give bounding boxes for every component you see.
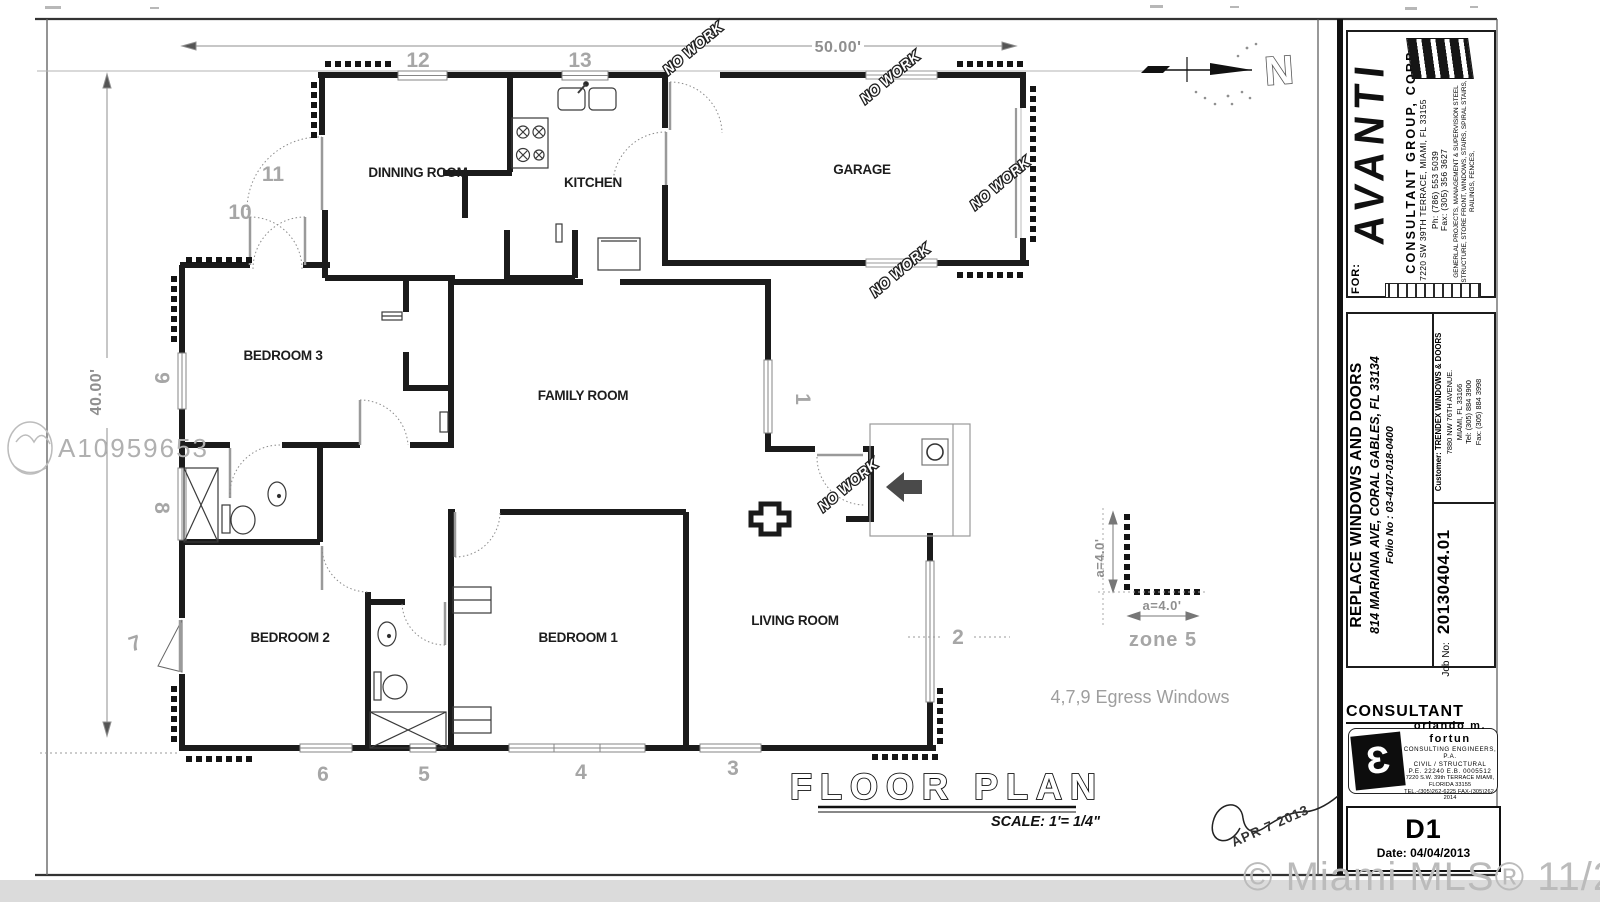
zone-mark bbox=[997, 61, 1003, 67]
zone-mark bbox=[236, 257, 242, 263]
zone-mark bbox=[246, 257, 252, 263]
zone-mark bbox=[355, 61, 361, 67]
entry-porch bbox=[870, 424, 970, 536]
zone-mark bbox=[1030, 106, 1036, 112]
egress-note: 4,7,9 Egress Windows bbox=[1050, 687, 1229, 707]
zone-mark bbox=[987, 61, 993, 67]
zone-mark bbox=[171, 696, 177, 702]
zone-mark bbox=[997, 272, 1003, 278]
zone-mark bbox=[1007, 272, 1013, 278]
no-work-label-garage-right: NO WORK bbox=[967, 153, 1033, 212]
opening-number-4: 4 bbox=[575, 761, 587, 784]
north-label: N bbox=[1263, 48, 1295, 94]
opening-number-10: 10 bbox=[228, 201, 251, 224]
room-label-dinning: DINNING ROOM bbox=[368, 165, 467, 180]
zone-mark bbox=[171, 706, 177, 712]
zone-mark bbox=[375, 61, 381, 67]
customer-tel: Tel: (305) 884 3900 bbox=[1464, 380, 1473, 444]
zone-mark bbox=[171, 326, 177, 332]
zone-mark bbox=[902, 754, 908, 760]
engineer-line5: TEL.-(305)262-6225 FAX-(305)262-2014 bbox=[1403, 789, 1497, 802]
engineer-line1: CONSULTING ENGINEERS, P.A. bbox=[1403, 746, 1497, 761]
windows bbox=[158, 71, 1021, 752]
dim-height: 40.00' bbox=[88, 369, 105, 416]
opening-number-6: 6 bbox=[317, 763, 329, 786]
opening-number-5: 5 bbox=[418, 763, 430, 786]
no-work-label-entry-top: NO WORK bbox=[660, 18, 726, 77]
zone-mark bbox=[325, 61, 331, 67]
zone-mark bbox=[246, 756, 252, 762]
zone-mark bbox=[1007, 61, 1013, 67]
zone-mark bbox=[1017, 272, 1023, 278]
zone-mark bbox=[311, 132, 317, 138]
job-number-label: Job No: bbox=[1441, 642, 1452, 676]
zone-mark bbox=[216, 257, 222, 263]
zone-mark bbox=[216, 756, 222, 762]
room-label-living: LIVING ROOM bbox=[751, 613, 839, 628]
zone-mark bbox=[171, 736, 177, 742]
zone-mark bbox=[1030, 216, 1036, 222]
zone-mark bbox=[922, 754, 928, 760]
zone-mark bbox=[937, 728, 943, 734]
zone-mark bbox=[1030, 96, 1036, 102]
north-arrow: N bbox=[1141, 43, 1295, 106]
zone-mark bbox=[872, 754, 878, 760]
engineer-logo-icon: Ɛ bbox=[1350, 732, 1405, 791]
zone-mark bbox=[196, 257, 202, 263]
crown-molding-art bbox=[1406, 38, 1474, 79]
zone-mark bbox=[932, 754, 938, 760]
zone-mark bbox=[882, 754, 888, 760]
room-label-kitchen: KITCHEN bbox=[564, 175, 622, 190]
zone-mark bbox=[345, 61, 351, 67]
room-label-bedroom2: BEDROOM 2 bbox=[250, 630, 329, 645]
bathroom-hall bbox=[370, 622, 446, 748]
legend-a-vertical: a=4.0' bbox=[1092, 539, 1107, 578]
customer-address1: 7880 NW 76TH AVENUE. bbox=[1445, 370, 1454, 454]
zone-mark bbox=[957, 272, 963, 278]
project-address: 814 MARIANA AVE, CORAL GABLES, FL 33134 bbox=[1368, 319, 1382, 671]
zone-mark bbox=[1124, 544, 1130, 550]
legend-a-horizontal: a=4.0' bbox=[1143, 598, 1182, 613]
zone-mark bbox=[1030, 86, 1036, 92]
firm-fax: Fax: (305) 356 3627 bbox=[1440, 90, 1450, 290]
zone-mark bbox=[171, 686, 177, 692]
sheet-number: D1 bbox=[1348, 814, 1499, 845]
zone-mark bbox=[892, 754, 898, 760]
job-number: 20130404.01 bbox=[1434, 529, 1453, 634]
zone-mark bbox=[196, 756, 202, 762]
zone-mark bbox=[1030, 156, 1036, 162]
zone-mark bbox=[1124, 564, 1130, 570]
zone-mark bbox=[171, 306, 177, 312]
zone-mark bbox=[171, 336, 177, 342]
engineer-name: orlando m. fortun bbox=[1403, 720, 1497, 746]
zone-mark bbox=[311, 122, 317, 128]
entry-arrow-icon bbox=[886, 472, 922, 502]
listing-id-watermark: A10959653 bbox=[58, 433, 209, 463]
mls-copyright-watermark: © Miami MLS® 11/2020 bbox=[1243, 855, 1600, 900]
zone-mark bbox=[171, 716, 177, 722]
no-work-label-garage-bottom: NO WORK bbox=[867, 240, 933, 299]
zone-mark bbox=[311, 92, 317, 98]
opening-number-8: 8 bbox=[150, 502, 173, 514]
zone-mark bbox=[977, 272, 983, 278]
approval-signature: APR 7 2013 bbox=[1212, 796, 1338, 850]
zone-mark bbox=[967, 61, 973, 67]
zone-mark bbox=[335, 61, 341, 67]
scale-label: SCALE: 1'= 1/4" bbox=[991, 814, 1101, 830]
zone-mark bbox=[1030, 226, 1036, 232]
customer-address2: MIAMI, FL 33166 bbox=[1455, 384, 1464, 440]
zone-mark bbox=[171, 276, 177, 282]
kitchen-sink bbox=[558, 88, 585, 110]
project-title: REPLACE WINDOWS AND DOORS bbox=[1348, 319, 1365, 671]
zone-mark bbox=[206, 756, 212, 762]
room-label-bedroom3: BEDROOM 3 bbox=[243, 348, 323, 363]
zone-mark bbox=[365, 61, 371, 67]
room-label-bedroom1: BEDROOM 1 bbox=[538, 630, 618, 645]
zone-mark bbox=[385, 61, 391, 67]
opening-number-11: 11 bbox=[262, 163, 285, 186]
zone-mark bbox=[1030, 116, 1036, 122]
zone-mark bbox=[226, 756, 232, 762]
zone-mark bbox=[171, 726, 177, 732]
customer-name: TRENDEX WINDOWS & DOORS bbox=[1434, 333, 1443, 450]
titleblock-firm-box: FOR: AVANTI CONSULTANT GROUP, CORP. 7220… bbox=[1346, 30, 1496, 298]
zone-mark bbox=[206, 257, 212, 263]
room-label-garage: GARAGE bbox=[833, 162, 891, 177]
zone-mark bbox=[977, 61, 983, 67]
zone5-legend: a=4.0' a=4.0' zone 5 bbox=[1092, 508, 1205, 651]
zone-mark bbox=[171, 286, 177, 292]
zone-mark bbox=[957, 61, 963, 67]
opening-number-13: 13 bbox=[568, 49, 591, 72]
zone-mark bbox=[311, 82, 317, 88]
engineer-line3: P.E. 22240 E.B. 0005512 bbox=[1403, 768, 1497, 775]
drawing-title-text: FLOOR PLAN bbox=[790, 766, 1104, 807]
column-art bbox=[1385, 283, 1481, 298]
zone-mark bbox=[1124, 514, 1130, 520]
firm-address: 7220 SW 39TH TERRACE, MIAMI, FL 33155 bbox=[1419, 90, 1429, 290]
avanti-logo: AVANTI bbox=[1347, 30, 1394, 275]
zone-mark bbox=[171, 296, 177, 302]
room-label-family: FAMILY ROOM bbox=[538, 388, 629, 403]
zone-mark bbox=[311, 102, 317, 108]
zone-mark bbox=[937, 708, 943, 714]
zone-mark bbox=[226, 257, 232, 263]
zone-mark bbox=[937, 688, 943, 694]
zone-mark bbox=[1030, 206, 1036, 212]
zone-mark bbox=[937, 738, 943, 744]
titleblock-project-box: REPLACE WINDOWS AND DOORS 814 MARIANA AV… bbox=[1346, 312, 1496, 668]
zone-mark bbox=[967, 272, 973, 278]
dim-width: 50.00' bbox=[815, 39, 862, 56]
opening-number-9: 9 bbox=[150, 372, 173, 384]
approval-date-stamp: APR 7 2013 bbox=[1229, 802, 1311, 850]
zone-mark bbox=[1030, 236, 1036, 242]
project-folio: Folio No : 03-4107-018-0400 bbox=[1385, 319, 1397, 671]
opening-number-12: 12 bbox=[406, 49, 429, 72]
zone-mark bbox=[937, 718, 943, 724]
engineer-line2: CIVIL / STRUCTURAL bbox=[1403, 761, 1497, 768]
zone-mark bbox=[1030, 136, 1036, 142]
zone-mark bbox=[1124, 574, 1130, 580]
zone-mark bbox=[987, 272, 993, 278]
opening-number-7: 7 bbox=[126, 631, 144, 656]
zone-mark bbox=[186, 756, 192, 762]
legend-zone-label: zone 5 bbox=[1129, 629, 1197, 651]
zone-mark bbox=[1124, 584, 1130, 590]
zone-mark bbox=[1124, 534, 1130, 540]
zone-mark bbox=[1030, 176, 1036, 182]
opening-number-2: 2 bbox=[952, 626, 964, 649]
consultant-stamp: Ɛ orlando m. fortun CONSULTING ENGINEERS… bbox=[1348, 728, 1498, 794]
zone-mark bbox=[186, 257, 192, 263]
zone-mark bbox=[1124, 554, 1130, 560]
zone-mark bbox=[171, 316, 177, 322]
zone-mark bbox=[311, 112, 317, 118]
bathroom-master bbox=[184, 468, 286, 542]
zone-mark bbox=[912, 754, 918, 760]
opening-number-3: 3 bbox=[727, 757, 739, 780]
engineer-line4: 7220 S.W. 39th TERRACE MIAMI, FLORIDA 33… bbox=[1403, 775, 1497, 788]
zone-mark bbox=[236, 756, 242, 762]
zone-mark bbox=[1030, 126, 1036, 132]
customer-label: Customer: bbox=[1434, 452, 1443, 491]
zone-mark bbox=[937, 698, 943, 704]
stove bbox=[512, 118, 548, 168]
zone-mark bbox=[1030, 146, 1036, 152]
zone-mark bbox=[1017, 61, 1023, 67]
customer-fax: Fax: (305) 884 3998 bbox=[1474, 379, 1483, 446]
zone-mark bbox=[1030, 196, 1036, 202]
opening-number-1: 1 bbox=[791, 393, 814, 405]
mls-listing-watermark: A10959653 bbox=[8, 422, 209, 474]
drawing-title: FLOOR PLAN SCALE: 1'= 1/4" bbox=[790, 766, 1104, 830]
zone-mark bbox=[1124, 524, 1130, 530]
drawing-sheet: N a=4.0' a=4.0' zone 5 4,7,9 Egress Wind… bbox=[0, 0, 1600, 902]
firm-services: GENERLAL PROJECTS, MANAGEMENT & SUPERVIS… bbox=[1453, 79, 1477, 284]
zone-mark bbox=[1030, 186, 1036, 192]
